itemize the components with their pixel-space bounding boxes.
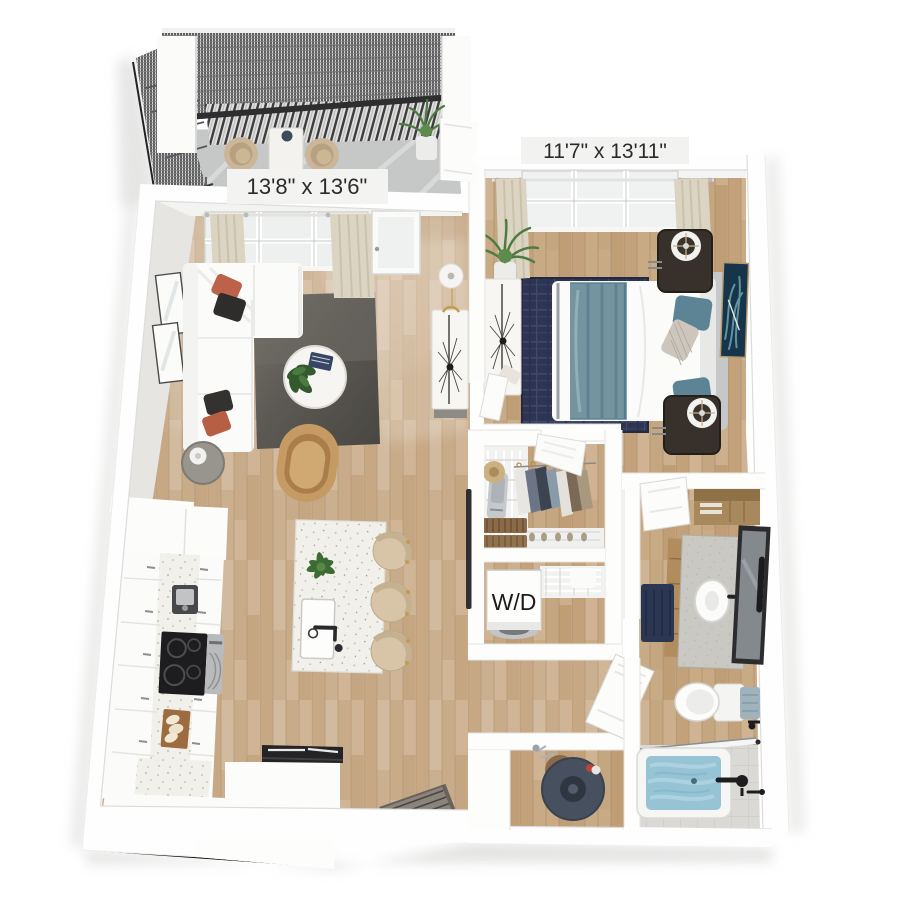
svg-text:11'7" x 13'11": 11'7" x 13'11" <box>543 140 667 163</box>
svg-text:13'8" x 13'6": 13'8" x 13'6" <box>247 174 368 199</box>
svg-text:W/D: W/D <box>492 589 537 615</box>
